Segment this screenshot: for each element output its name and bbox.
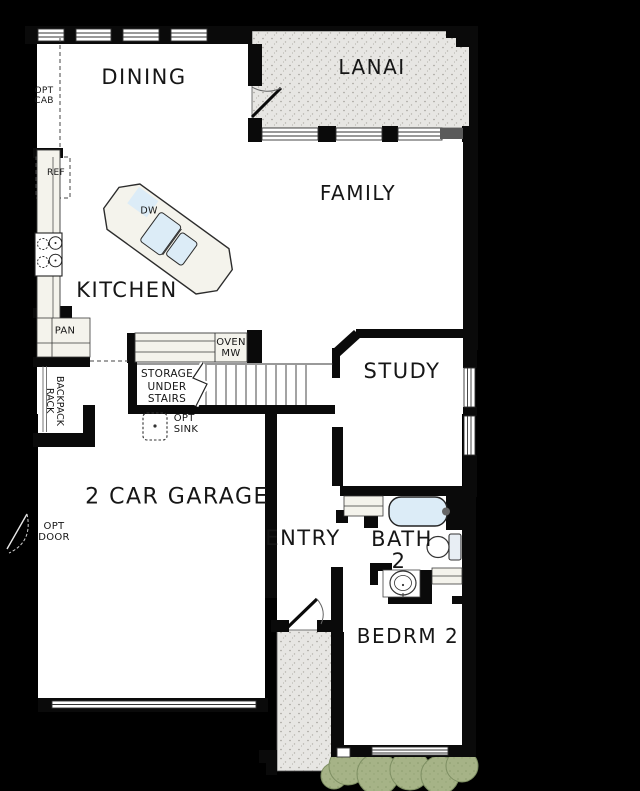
label-opt-sink: OPT SINK — [174, 413, 199, 435]
label-pan: PAN — [55, 325, 76, 336]
lanai-top-wall — [252, 26, 478, 31]
slider-panel — [440, 128, 463, 139]
linen-shelf — [432, 568, 462, 584]
room-label-kitchen: KITCHEN — [76, 279, 178, 303]
room-label-entry: ENTRY — [265, 527, 340, 551]
room-label-garage: 2 CAR GARAGE — [85, 486, 269, 511]
mud-post — [83, 405, 95, 447]
room-label-study: STUDY — [364, 360, 441, 384]
bedroom-left-wall — [331, 632, 344, 757]
vanity-sink — [383, 570, 420, 598]
floor-plan-drawing — [0, 0, 640, 791]
study-left-wall-upper — [332, 348, 340, 378]
label-oven-mw: OVEN MW — [216, 337, 246, 359]
room-label-bath-2: 2 — [392, 550, 407, 574]
tub-faucet — [442, 508, 450, 516]
room-label-family: FAMILY — [320, 182, 396, 204]
stove — [35, 233, 62, 276]
lanai-sliding-door — [262, 128, 463, 140]
label-opt-door: OPT DOOR — [38, 521, 70, 543]
bathtub — [389, 497, 447, 526]
entry-closet — [344, 496, 383, 516]
porch-step-2 — [266, 763, 277, 775]
label-storage-under-stairs: STORAGE UNDER STAIRS — [141, 368, 193, 406]
pantry — [37, 318, 90, 357]
family-right-wall — [463, 126, 478, 350]
room-label-lanai: LANAI — [338, 56, 405, 78]
bath-top-wall — [340, 486, 464, 496]
entry-east-wall — [332, 428, 343, 483]
dining-lanai-wall-upper — [248, 44, 262, 86]
bedroom-right-wall — [462, 486, 476, 757]
lanai-right-wall — [469, 44, 478, 128]
stair-rail-wall — [128, 405, 335, 414]
label-backpack-rack: BACKPACK RACK — [44, 366, 64, 436]
lanai-corner-step — [446, 26, 456, 38]
label-ref: REF — [47, 168, 65, 178]
room-label-bedroom2: BEDRM 2 — [357, 625, 460, 647]
room-label-dining: DINING — [101, 66, 186, 90]
label-dw: DW — [140, 207, 157, 218]
lanai-floor — [252, 31, 470, 128]
label-opt-cab: OPT CAB — [34, 86, 54, 106]
study-top-wall — [356, 329, 464, 338]
porch-step — [259, 750, 277, 763]
porch-floor — [277, 630, 332, 771]
room-label-bath: BATH — [371, 528, 433, 552]
floor-plan: DINING LANAI FAMILY KITCHEN STUDY 2 CAR … — [0, 0, 640, 791]
opt-door — [7, 514, 28, 553]
lanai-corner — [456, 26, 478, 47]
study-right-wall-top — [463, 337, 477, 368]
garage-door — [52, 701, 256, 708]
